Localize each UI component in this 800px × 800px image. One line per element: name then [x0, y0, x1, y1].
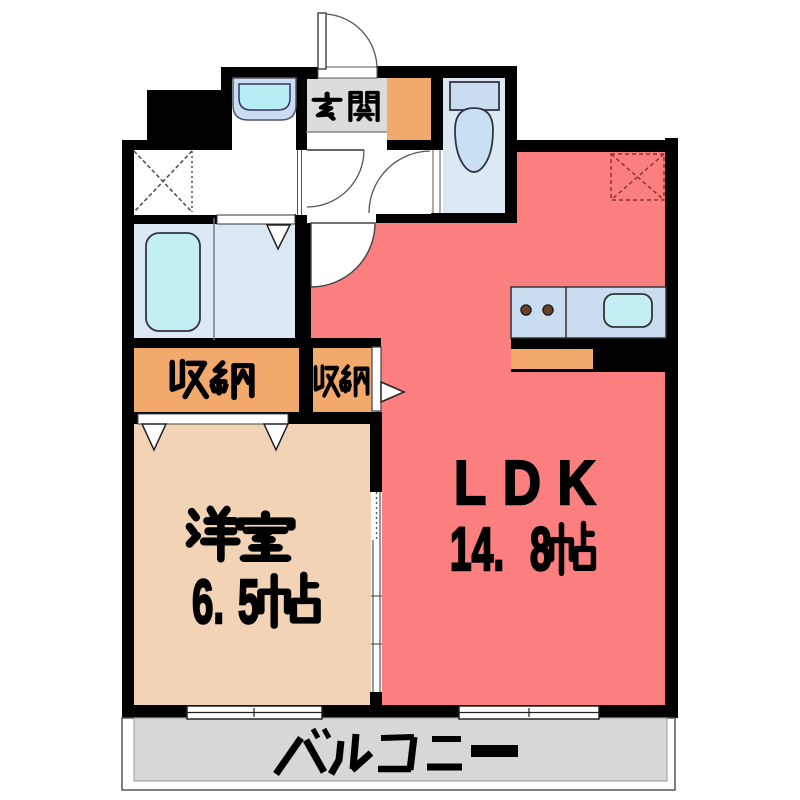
svg-text:LDK: LDK: [454, 449, 612, 518]
svg-text:5: 5: [238, 567, 259, 637]
svg-text:14.: 14.: [450, 515, 504, 583]
svg-text:8: 8: [530, 515, 552, 583]
svg-text:6.: 6.: [192, 567, 224, 637]
